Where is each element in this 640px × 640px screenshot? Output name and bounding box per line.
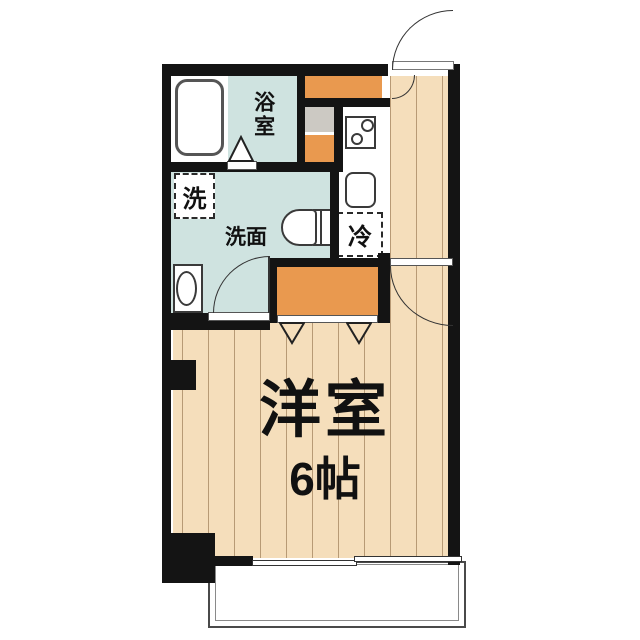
wall-closet-right [378,253,390,323]
wall-closet-left [270,267,277,323]
entrance-storage [303,75,382,98]
kitchen-cabinet [305,135,334,163]
wall-under-washroom-door [208,321,270,330]
corner-pillar-bottom-left [162,533,215,583]
closet-door-swing-icon-left [279,322,305,345]
main-room-size-label: 6帖 [245,455,405,505]
stove-burner-small [351,133,363,145]
floorplan-canvas: 浴室 洗 洗面 冷 [0,0,640,640]
wall-left-pillar-bump [169,360,196,390]
wall-top [162,64,388,76]
washbasin-bowl [176,271,197,306]
washroom-door-threshold [208,312,270,321]
wall-below-entrance-storage [297,98,390,107]
stove-burner-large [361,119,374,132]
kitchen-sink [345,172,376,208]
balcony-inner-line [215,564,459,621]
wall-washroom-right [330,172,339,258]
wall-left [162,64,171,540]
entrance-door-arc [392,10,453,70]
wall-bath-cabinet-divider [297,76,305,172]
bathroom-folding-door-icon [227,135,255,163]
wall-bottom-segment [215,556,253,566]
toilet-bowl [281,209,317,246]
toilet-tank-line [320,211,322,244]
washroom-label: 洗面 [225,227,267,250]
closet-door-swing-icon-right [346,322,372,345]
washbasin [173,264,203,313]
closet [277,267,378,315]
window-sash-left [252,560,357,566]
washer-space: 洗 [174,173,215,219]
fridge-label: 冷 [348,217,372,252]
bathroom-label: 浴室 [251,91,274,139]
hall-door-threshold [390,258,453,266]
wall-washroom-bottom-left [162,313,208,330]
counter-gray-box [305,107,334,132]
stove [345,116,376,149]
washer-label: 洗 [183,179,207,214]
wall-above-closet [270,258,390,267]
main-room-label: 洋室 [245,378,405,445]
bathtub [175,79,224,156]
fridge-space: 冷 [337,212,383,257]
window-sash-right [354,556,462,562]
